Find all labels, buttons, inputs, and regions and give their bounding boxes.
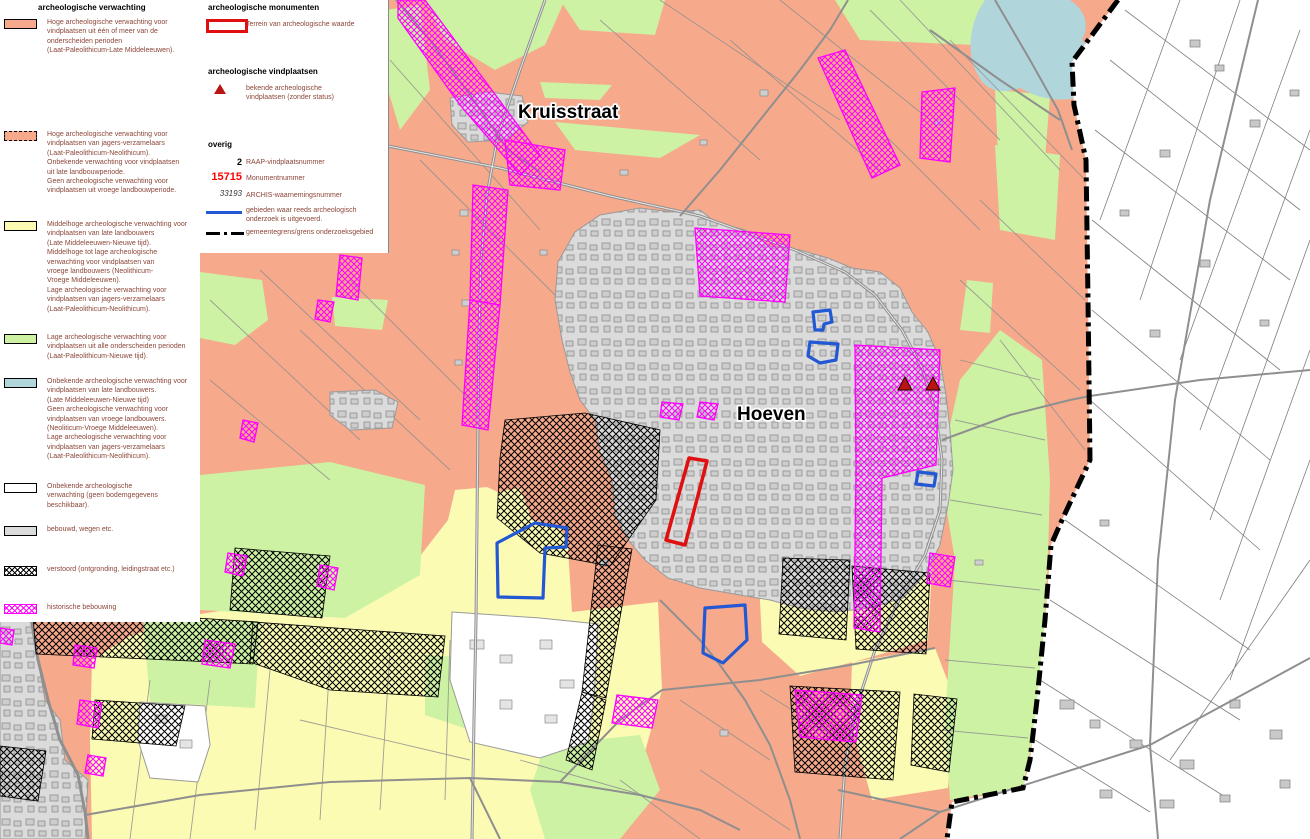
symbol-monument-number: 15715 (200, 171, 242, 183)
legend-text-vindplaatsen: bekende archeologische vindplaatsen (zon… (246, 84, 334, 103)
symbol-raap-number: 2 (200, 157, 242, 167)
legend-title-vindplaatsen: archeologische vindplaatsen (208, 67, 318, 76)
label-kruisstraat: Kruisstraat (518, 102, 619, 123)
symbol-archis-number: 33193 (200, 189, 242, 198)
swatch-white-solid (4, 483, 37, 493)
red-triangle-icon (214, 84, 226, 94)
legend-text-gemeentegrens: gemeentegrens/grens onderzoeksgebied (246, 228, 373, 237)
swatch-black-hatch (4, 566, 37, 576)
legend-text-monumentnummer: Monumentnummer (246, 174, 305, 183)
legend-text-monument: Terrein van archeologische waarde (246, 20, 355, 29)
swatch-green-solid (4, 334, 37, 344)
legend-text-raap: RAAP-vindplaatsnummer (246, 158, 325, 167)
swatch-magenta-hatch (4, 604, 37, 614)
legend-text-onderzoek: gebieden waar reeds archeologisch onderz… (246, 206, 357, 225)
legend-title-overig: overig (208, 140, 232, 149)
swatch-red-outline (206, 19, 248, 33)
dash-dot-line-icon (206, 232, 244, 235)
archaeological-expectation-map: Kruisstraat Hoeven archeologische verwac… (0, 0, 1310, 839)
swatch-blue-solid (4, 378, 37, 388)
legend-title-verwachting: archeologische verwachting (38, 3, 146, 12)
legend-text-archis: ARCHIS-waarnemingsnummer (246, 191, 342, 200)
legend-panel-verwachting: archeologische verwachting Hoge archeolo… (0, 0, 200, 622)
legend-title-monumenten: archeologische monumenten (208, 3, 319, 12)
swatch-salmon-dashed (4, 131, 37, 141)
swatch-gray-solid (4, 526, 37, 536)
swatch-yellow-solid (4, 221, 37, 231)
blue-line-icon (206, 211, 242, 214)
label-hoeven: Hoeven (737, 404, 806, 425)
legend-panel-monumenten: archeologische monumenten Terrein van ar… (200, 0, 389, 253)
swatch-salmon-solid (4, 19, 37, 29)
